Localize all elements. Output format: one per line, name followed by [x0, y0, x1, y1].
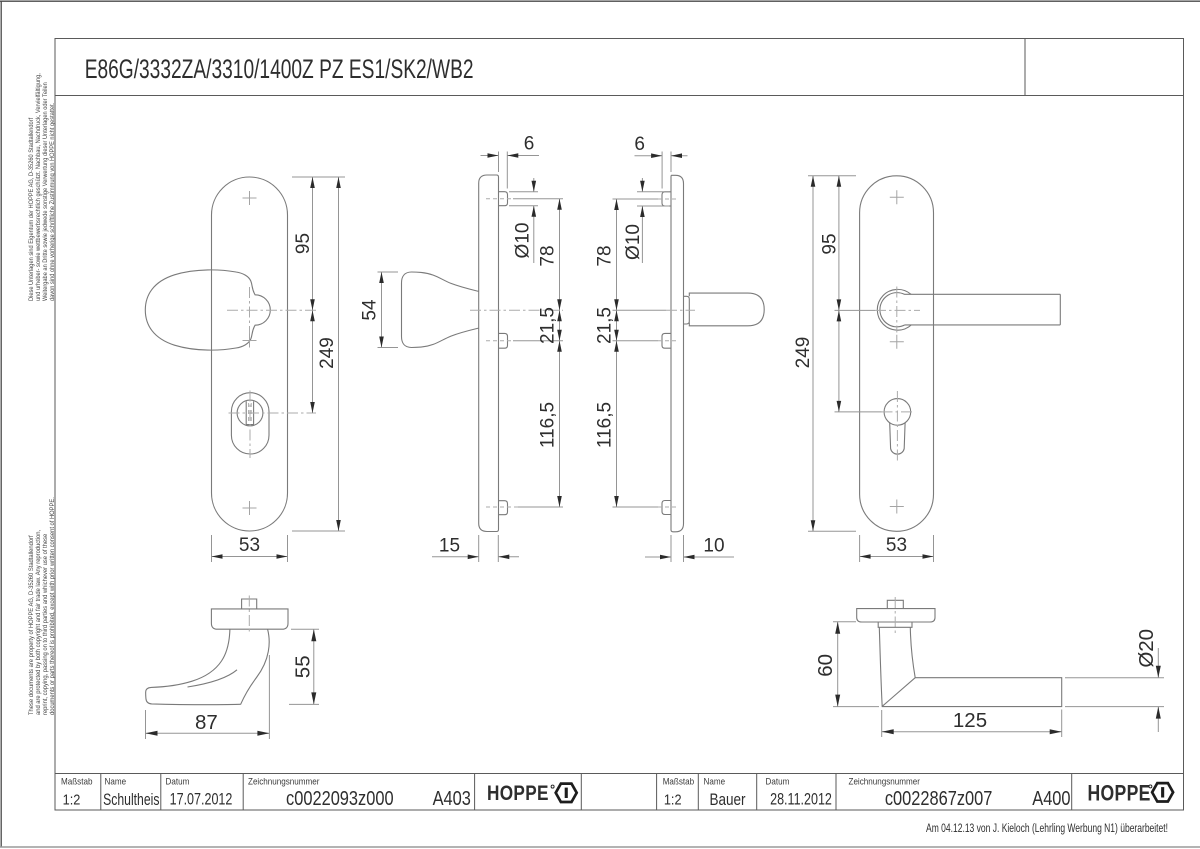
svg-text:87: 87	[195, 711, 218, 734]
svg-text:c0022093z000: c0022093z000	[286, 786, 394, 809]
svg-text:Bauer: Bauer	[709, 791, 745, 810]
svg-text:78: 78	[595, 245, 616, 266]
svg-text:125: 125	[953, 709, 987, 732]
svg-text:249: 249	[317, 337, 338, 369]
svg-text:55: 55	[292, 655, 315, 678]
svg-text:Am 04.12.13 von J. Kieloch (Le: Am 04.12.13 von J. Kieloch (Lehrling Wer…	[926, 823, 1168, 836]
svg-text:28.11.2012: 28.11.2012	[770, 791, 832, 809]
svg-text:95: 95	[293, 233, 314, 254]
svg-text:Maßstab: Maßstab	[61, 776, 93, 787]
svg-text:15: 15	[439, 536, 460, 557]
svg-text:Zeichnungsnummer: Zeichnungsnummer	[849, 776, 921, 787]
svg-text:10: 10	[703, 536, 724, 557]
svg-text:A403: A403	[433, 786, 471, 809]
svg-text:Schultheis: Schultheis	[103, 791, 159, 809]
svg-text:54: 54	[360, 299, 381, 321]
svg-text:und urheber- sowie wettbewerbs: und urheber- sowie wettbewerbsrechtlich …	[36, 73, 42, 301]
svg-text:6: 6	[524, 134, 535, 155]
svg-text:60: 60	[814, 654, 837, 677]
svg-text:A400: A400	[1032, 786, 1070, 809]
svg-text:documents or parts thereof is: documents or parts thereof is prohibited…	[50, 497, 56, 715]
svg-text:95: 95	[820, 233, 841, 254]
svg-text:249: 249	[793, 337, 814, 369]
svg-text:78: 78	[538, 245, 559, 266]
svg-text:E86G/3332ZA/3310/1400Z PZ ES1/: E86G/3332ZA/3310/1400Z PZ ES1/SK2/WB2	[85, 54, 474, 84]
svg-text:Ø20: Ø20	[1135, 629, 1158, 668]
svg-text:53: 53	[239, 535, 260, 556]
svg-text:1:2: 1:2	[664, 790, 682, 807]
svg-text:Zeichnungsnummer: Zeichnungsnummer	[248, 776, 320, 787]
svg-text:Name: Name	[105, 776, 127, 787]
svg-text:6: 6	[634, 134, 645, 155]
svg-text:53: 53	[886, 535, 907, 556]
svg-text:Datum: Datum	[166, 776, 190, 787]
svg-text:Diese Unterlagen sind Eigentum: Diese Unterlagen sind Eigentum der HOPPE…	[29, 118, 35, 301]
svg-text:These documents are property o: These documents are property of HOPPE AG…	[29, 535, 35, 715]
svg-text:Ø10: Ø10	[623, 224, 644, 260]
svg-text:Name: Name	[704, 776, 726, 787]
svg-text:HOPPE: HOPPE	[1088, 782, 1151, 806]
svg-text:116,5: 116,5	[538, 402, 559, 448]
svg-text:Weitergabe an Dritte sowie jed: Weitergabe an Dritte sowie jedwede sonst…	[43, 82, 49, 301]
svg-text:and are protected by both copy: and are protected by both copyright and …	[36, 530, 42, 715]
svg-text:21,5: 21,5	[538, 307, 559, 344]
svg-text:Datum: Datum	[766, 776, 790, 787]
svg-text:davon sind ohne vorherige schr: davon sind ohne vorherige schriftliche Z…	[50, 102, 56, 301]
svg-text:21,5: 21,5	[595, 307, 616, 344]
svg-text:HOPPE: HOPPE	[487, 781, 549, 805]
svg-text:116,5: 116,5	[595, 402, 616, 448]
svg-text:c0022867z007: c0022867z007	[885, 786, 993, 809]
svg-text:Maßstab: Maßstab	[663, 776, 695, 787]
svg-text:1:2: 1:2	[63, 790, 81, 807]
svg-text:17.07.2012: 17.07.2012	[170, 791, 233, 809]
svg-text:Ø10: Ø10	[513, 223, 534, 259]
svg-text:reprint, copying, passing on t: reprint, copying, passing on to third pa…	[43, 533, 49, 715]
